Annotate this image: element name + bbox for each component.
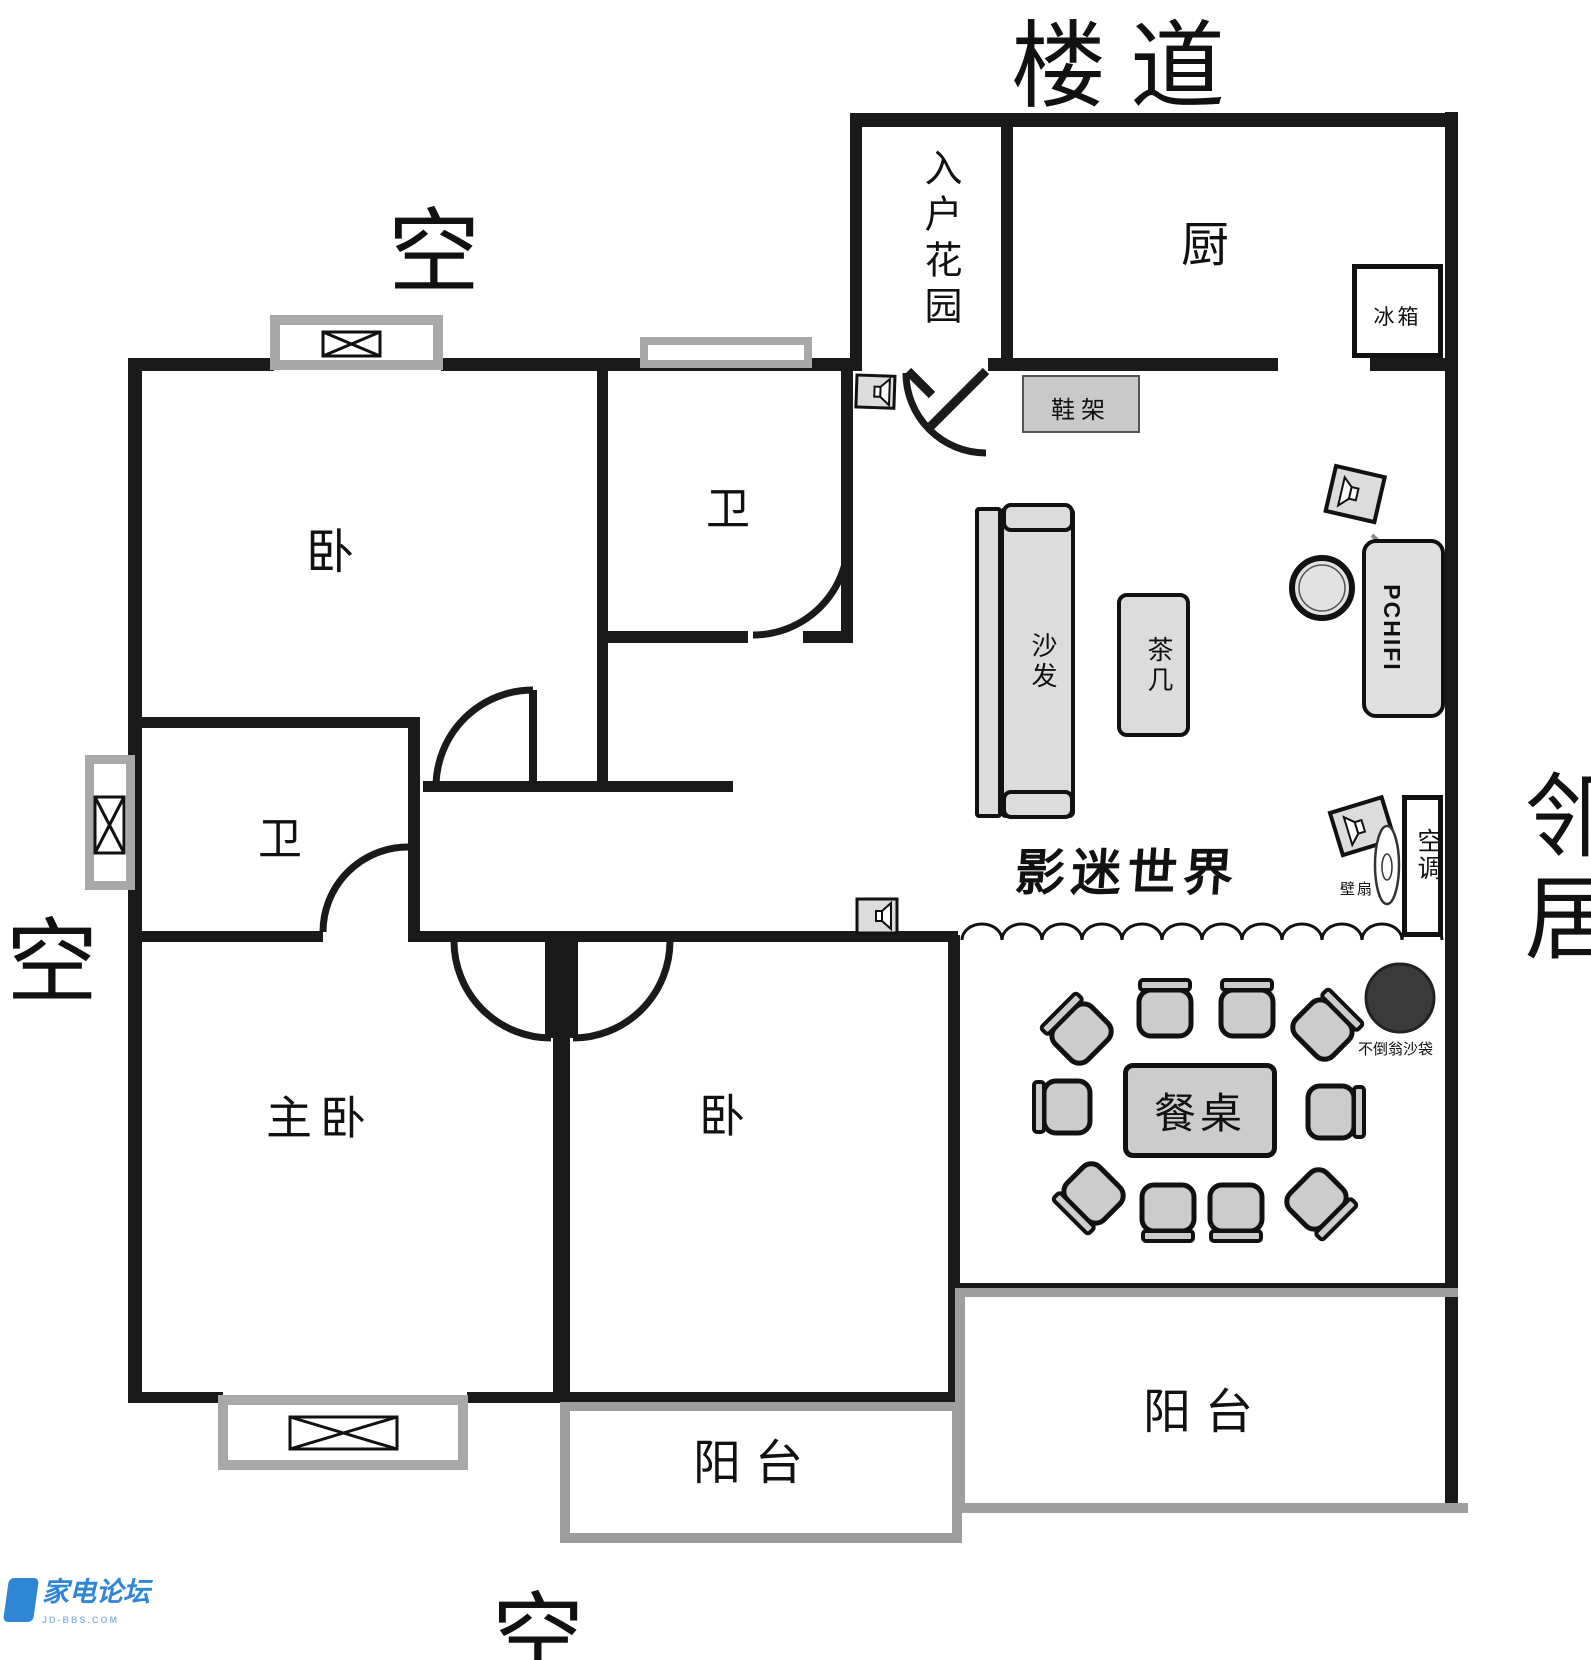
bedroom-mid-door-icon: [573, 941, 670, 1038]
bath-mid-label: 卫: [240, 803, 320, 867]
chair-icon: [1139, 980, 1191, 1036]
ac-unit-x-icon: [95, 797, 124, 853]
sofa-armrest: [1002, 503, 1074, 532]
balcony-mid-label: 阳台: [645, 1423, 865, 1493]
chair-icon: [1282, 1165, 1358, 1241]
void-bottom-label: 空: [492, 1562, 584, 1660]
bath-mid-door-icon: [323, 847, 412, 932]
tea-table-label: 茶几: [1140, 636, 1177, 696]
speaker-icon: [1326, 466, 1385, 522]
speaker-icon: [856, 375, 895, 408]
shoe-rack-label: 鞋架: [1022, 390, 1140, 425]
pchifi-label: PCHIFI: [1379, 563, 1405, 693]
bedroom-top-label: 卧: [285, 512, 375, 582]
corridor-label: 楼道: [1010, 0, 1250, 127]
watermark-logo-icon: [3, 1578, 39, 1622]
wall-fan-icon: [1375, 826, 1399, 904]
tumbler-sandbag-icon: [1366, 964, 1434, 1032]
chair-icon: [1040, 992, 1116, 1068]
watermark-title: 家电论坛: [42, 1578, 150, 1606]
tumbler-sandbag-label: 不倒翁沙袋: [1358, 1038, 1433, 1059]
chair-icon: [1308, 1086, 1364, 1138]
chair-icon: [1052, 1159, 1128, 1235]
curtain-icon: [962, 924, 1442, 940]
bedroom-mid-label: 卧: [677, 1080, 767, 1146]
entry-door-icon: [906, 371, 986, 453]
void-top-label: 空: [388, 178, 480, 311]
sofa-label: 沙发: [1024, 632, 1061, 692]
master-bedroom-label: 主卧: [250, 1082, 390, 1148]
chair-icon: [1210, 1185, 1262, 1241]
watermark-subtitle: JD-BBS.COM: [42, 1606, 150, 1634]
sofa-armrest: [1002, 790, 1074, 819]
balcony-right-label: 阳台: [1095, 1372, 1315, 1442]
bath-top-door-icon: [753, 540, 848, 635]
entry-garden-label: 入户花园: [912, 148, 967, 332]
sofa-back: [975, 507, 1002, 818]
master-door-icon: [454, 941, 551, 1038]
kitchen-label: 厨: [1155, 205, 1255, 275]
chair-icon: [1034, 1081, 1090, 1133]
bath-top-label: 卫: [688, 473, 768, 537]
watermark: 家电论坛 JD-BBS.COM: [6, 1578, 150, 1634]
chair-icon: [1142, 1185, 1194, 1241]
cinema-caption: 影迷世界: [1012, 833, 1242, 905]
dining-table-label: 餐桌: [1123, 1063, 1277, 1158]
plan-symbols: [0, 0, 1591, 1660]
ac-unit-x-icon: [323, 332, 380, 356]
aircon-label: 空调: [1409, 828, 1445, 882]
chair-icon: [1221, 980, 1273, 1036]
chair-icon: [1288, 988, 1364, 1064]
fridge-label: 冰箱: [1356, 301, 1439, 331]
floor-plan: 冰箱 鞋架 沙发 茶几 PCHIFI 空调 壁扇 餐桌 不倒翁沙袋 入户花园 厨…: [0, 0, 1591, 1660]
ac-unit-x-icon: [290, 1417, 397, 1449]
wall-fan-label: 壁扇: [1340, 878, 1374, 899]
speaker-icon: [857, 899, 897, 933]
bedroom-top-door-icon: [436, 690, 533, 787]
stool-icon: [1292, 558, 1352, 618]
void-left-label: 空: [6, 888, 98, 1021]
neighbor-label: 邻居: [1496, 768, 1591, 972]
